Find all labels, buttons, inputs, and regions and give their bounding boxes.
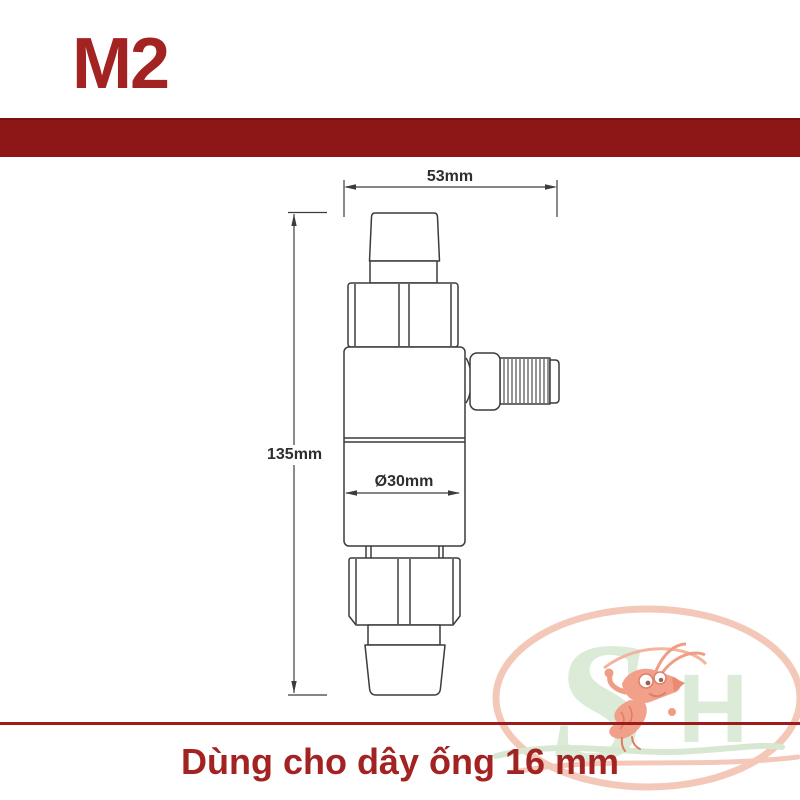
model-label: M2 xyxy=(72,28,168,100)
top-red-bar xyxy=(0,118,800,157)
fitting-outline xyxy=(344,213,559,695)
valve-end-cap xyxy=(550,360,559,403)
top-nut xyxy=(348,283,458,347)
usage-caption: Dùng cho dây ống 16 mm xyxy=(0,740,800,783)
bottom-red-line xyxy=(0,722,800,725)
dimension-width-label: 53mm xyxy=(410,168,490,186)
bottom-nut xyxy=(349,558,460,625)
dimension-diameter-label: Ø30mm xyxy=(364,473,444,491)
main-body xyxy=(344,347,465,546)
top-neck xyxy=(370,261,437,283)
product-spec-image: M2 S H xyxy=(0,0,800,800)
top-barb xyxy=(370,213,440,261)
bottom-barb xyxy=(365,645,445,695)
dimension-height-label: 135mm xyxy=(267,445,321,465)
bottom-neck xyxy=(368,625,440,645)
valve-collar xyxy=(470,353,500,410)
